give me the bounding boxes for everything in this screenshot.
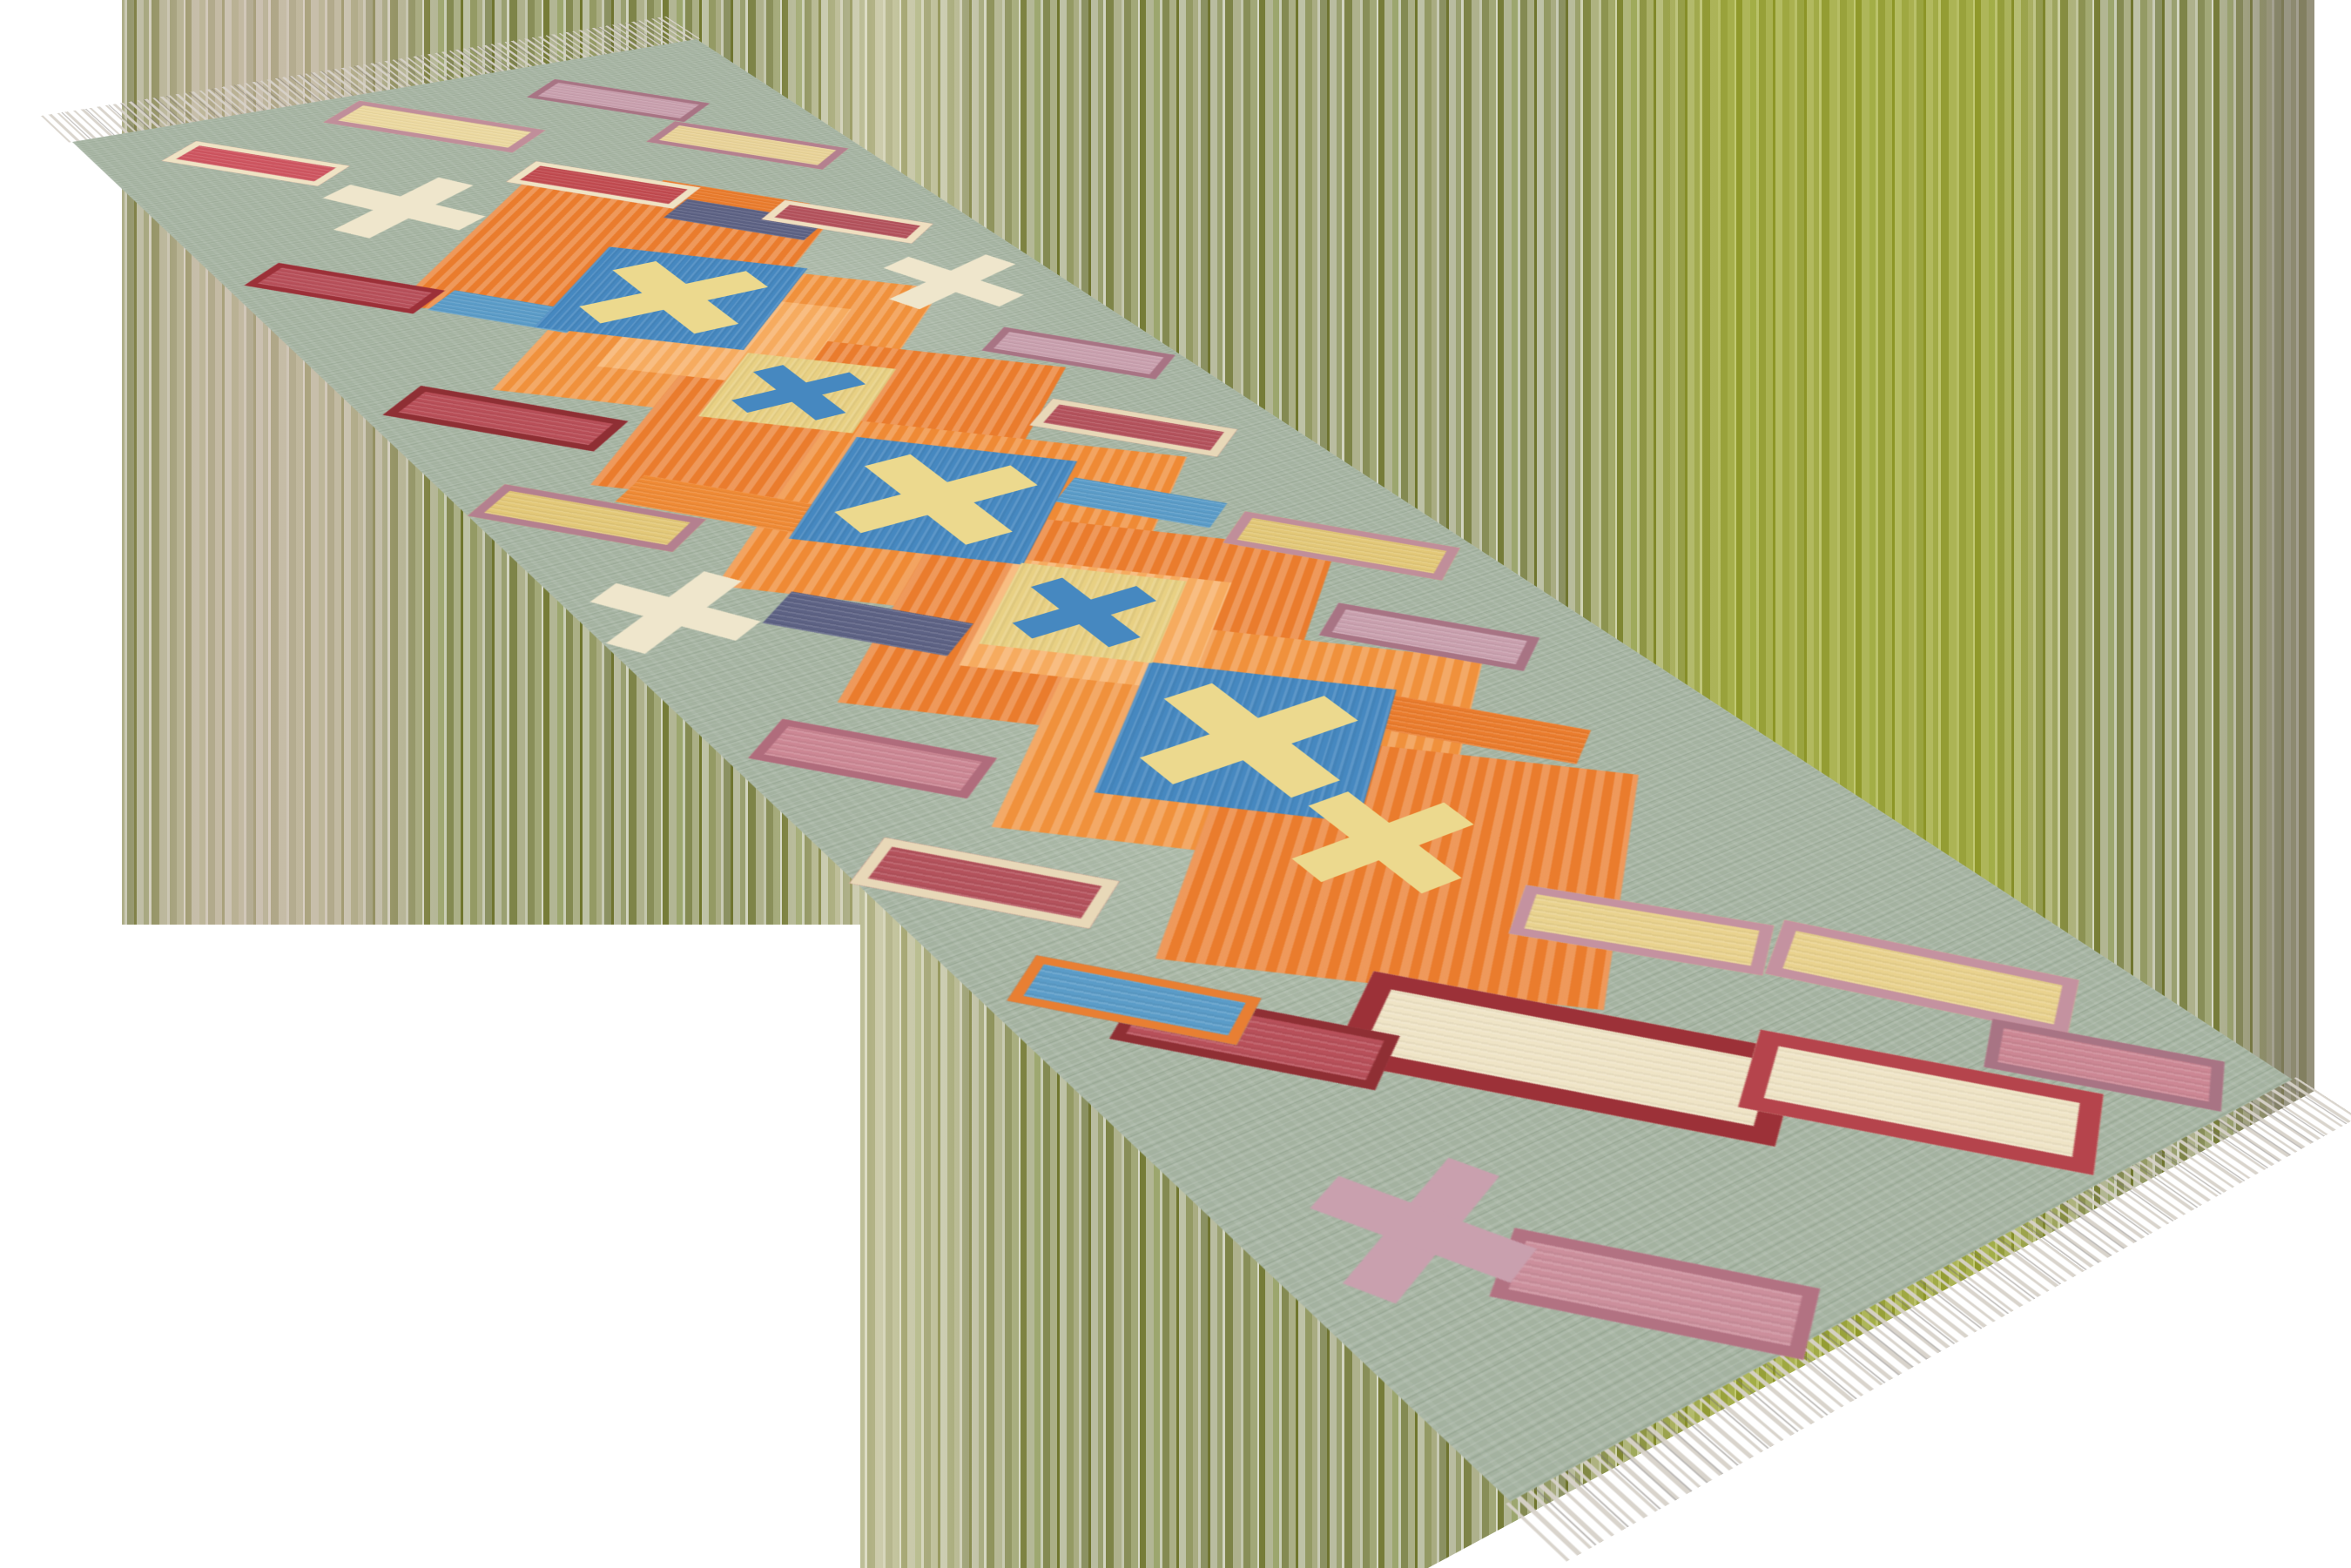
rug-motif-rect (748, 719, 997, 799)
page-root (0, 0, 2351, 1568)
rug-motif-rect (1765, 920, 2079, 1037)
rug-motif-rect (646, 121, 848, 170)
rug-motif-rect (527, 79, 710, 122)
kilim-runner-rug (0, 0, 2351, 1568)
rug-motif-rect (323, 101, 545, 153)
rug-plane (72, 39, 2292, 1502)
rug-motif-rect (245, 263, 445, 313)
rug-motif-rect (1490, 1228, 1821, 1359)
rug-motif-rect (849, 837, 1119, 928)
rug-motif-rect (162, 141, 350, 186)
